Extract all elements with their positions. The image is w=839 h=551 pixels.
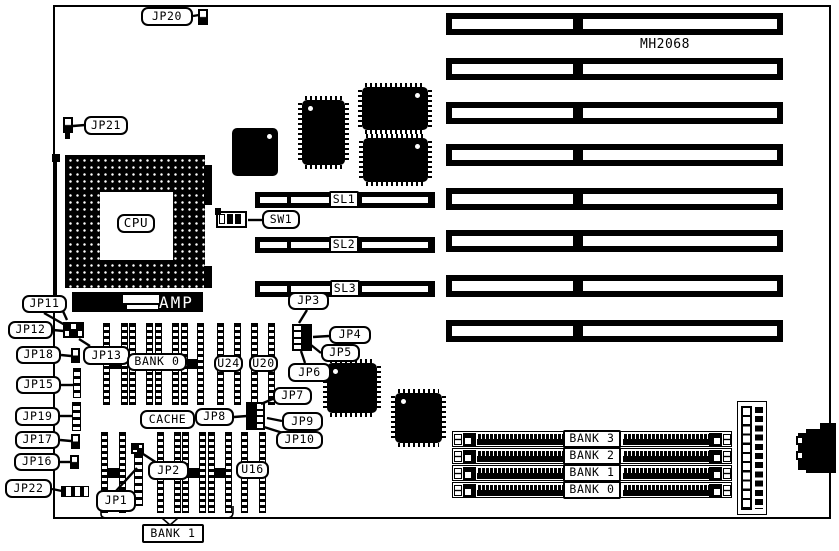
simm-endcap <box>723 434 731 445</box>
simm-bank-label: BANK 0 <box>563 481 621 499</box>
slot-opening <box>452 64 573 74</box>
chip-qfp <box>327 363 377 413</box>
amp-connector-key <box>127 305 158 309</box>
cpu-label: CPU <box>117 214 155 233</box>
isa-slot-2 <box>446 58 783 80</box>
isa-slot-4 <box>446 144 783 166</box>
simm-latch <box>463 450 476 463</box>
callout-jp7: JP7 <box>273 387 312 405</box>
slot-opening <box>260 242 287 248</box>
jumper-block-jp11-jp13 <box>63 322 84 338</box>
jumper-block-jp3-jp6 <box>292 324 312 351</box>
socket-lever <box>55 162 57 300</box>
slot-opening <box>260 286 287 292</box>
callout-jp10: JP10 <box>276 431 323 449</box>
slot-opening <box>362 242 428 248</box>
jumper-jp18 <box>71 348 80 363</box>
slot-opening <box>452 326 573 336</box>
simm-endcap <box>723 468 731 479</box>
pin1-dot <box>401 399 406 404</box>
callout-jp11: JP11 <box>22 295 67 313</box>
slot-opening <box>452 108 573 118</box>
isa-slot-8 <box>446 320 783 342</box>
jumper-strip-jp19 <box>72 402 81 431</box>
amp-connector-label: AMP <box>159 295 194 311</box>
simm-contact-strip <box>477 485 563 496</box>
simm-bank-label: BANK 3 <box>563 430 621 448</box>
simm-latch <box>709 467 722 480</box>
callout-jp5: JP5 <box>321 344 360 362</box>
keyboard-connector-pin <box>796 436 804 445</box>
slot-label-sl1: SL1 <box>329 191 359 208</box>
isa-slot-7 <box>446 275 783 297</box>
simm-socket-bank1: BANK 1 <box>452 465 732 481</box>
simm-endcap <box>454 468 462 479</box>
pin1-dot <box>415 144 420 149</box>
callout-jp15: JP15 <box>16 376 61 394</box>
callout-jp2: JP2 <box>148 461 189 480</box>
slot-opening <box>583 64 777 74</box>
callout-jp21: JP21 <box>84 116 128 135</box>
slot-opening <box>452 281 573 291</box>
callout-jp1: JP1 <box>96 490 136 512</box>
slot-opening <box>583 108 777 118</box>
callout-jp20: JP20 <box>141 7 193 26</box>
pin1-dot <box>415 93 420 98</box>
power-pin-column <box>755 407 763 509</box>
callout-jp18: JP18 <box>16 346 61 364</box>
cache-label: CACHE <box>140 410 195 429</box>
switch-cell <box>227 214 233 224</box>
simm-contact-strip <box>477 434 563 445</box>
slot-opening <box>583 236 777 246</box>
chip-qfp <box>302 100 345 165</box>
jumper-jp21-stem <box>65 133 70 139</box>
socket-tab <box>204 165 212 205</box>
keyboard-connector <box>806 429 821 473</box>
u16-label: U16 <box>236 461 269 479</box>
slot-label-sl2: SL2 <box>329 236 359 253</box>
simm-endcap <box>454 434 462 445</box>
simm-endcap <box>454 451 462 462</box>
isa-slot-5 <box>446 188 783 210</box>
dip-chip <box>208 432 232 513</box>
callout-jp9: JP9 <box>282 412 323 431</box>
socket-tab <box>204 266 212 288</box>
simm-socket-bank3: BANK 3 <box>452 431 732 447</box>
u24-label: U24 <box>214 355 243 372</box>
pin1-dot <box>333 369 338 374</box>
callout-jp8: JP8 <box>195 408 234 426</box>
isa-slot-1 <box>446 13 783 35</box>
jumper-strip-jp22 <box>61 486 89 497</box>
callout-jp22: JP22 <box>5 479 52 498</box>
chip-qfp <box>362 87 428 130</box>
slot-opening <box>291 242 330 248</box>
slot-opening <box>452 150 573 160</box>
simm-latch <box>709 484 722 497</box>
keyboard-connector-pin <box>796 451 804 460</box>
jumper-block-jp7-jp10 <box>246 402 265 430</box>
u20-label: U20 <box>249 355 278 372</box>
switch-cell <box>219 214 225 224</box>
slot-opening <box>583 281 777 291</box>
jumper-strip-jp15 <box>73 368 81 398</box>
slot-opening <box>583 194 777 204</box>
jumper-jp17 <box>71 434 80 449</box>
slot-opening <box>362 286 428 292</box>
board-id-label: MH2068 <box>640 38 690 51</box>
slot-opening <box>362 197 428 203</box>
callout-jp17: JP17 <box>15 431 60 449</box>
simm-latch <box>709 450 722 463</box>
simm-contact-strip <box>477 468 563 479</box>
callout-jp19: JP19 <box>15 407 60 426</box>
callout-jp3: JP3 <box>288 292 329 310</box>
simm-contact-strip <box>623 434 709 445</box>
bank0-label: BANK 0 <box>127 353 187 371</box>
simm-latch <box>463 433 476 446</box>
isa-slot-6 <box>446 230 783 252</box>
slot-opening <box>583 326 777 336</box>
socket-lever-foot <box>52 154 60 162</box>
simm-socket-bank0: BANK 0 <box>452 482 732 498</box>
jumper-jp21 <box>63 117 73 133</box>
slot-opening <box>583 19 777 29</box>
simm-contact-strip <box>623 485 709 496</box>
amp-connector-key <box>123 295 159 303</box>
pin1-dot <box>267 134 272 139</box>
slot-opening <box>583 150 777 160</box>
chip-square <box>232 128 278 176</box>
simm-socket-bank2: BANK 2 <box>452 448 732 464</box>
bank1-label: BANK 1 <box>142 524 204 543</box>
chip-qfp <box>395 393 442 443</box>
keyboard-connector <box>820 423 836 473</box>
simm-contact-strip <box>477 451 563 462</box>
power-connector <box>737 401 767 515</box>
callout-jp12: JP12 <box>8 321 53 339</box>
simm-contact-strip <box>623 468 709 479</box>
jumper-jp20 <box>198 9 208 25</box>
simm-endcap <box>723 451 731 462</box>
slot-opening <box>291 197 330 203</box>
callout-jp6: JP6 <box>288 363 331 382</box>
chip-qfp <box>363 138 428 182</box>
power-pin-column <box>741 406 752 510</box>
pin1-dot <box>308 106 313 111</box>
slot-opening <box>452 19 573 29</box>
simm-endcap <box>454 485 462 496</box>
motherboard-diagram: MH2068 SL1 SL2 SL3 AMP <box>0 0 839 551</box>
slot-opening <box>452 194 573 204</box>
simm-latch <box>709 433 722 446</box>
slot-opening <box>452 236 573 246</box>
callout-jp4: JP4 <box>329 326 371 344</box>
switch-cell <box>235 214 241 224</box>
callout-sw1: SW1 <box>262 210 300 229</box>
simm-bank-label: BANK 2 <box>563 447 621 465</box>
slot-opening <box>260 197 287 203</box>
isa-slot-3 <box>446 102 783 124</box>
simm-latch <box>463 467 476 480</box>
callout-jp13: JP13 <box>83 346 130 365</box>
callout-jp16: JP16 <box>14 453 60 471</box>
simm-endcap <box>723 485 731 496</box>
simm-contact-strip <box>623 451 709 462</box>
jumper-block-jp2 <box>131 443 144 454</box>
simm-bank-label: BANK 1 <box>563 464 621 482</box>
slot-label-sl3: SL3 <box>330 280 360 297</box>
simm-latch <box>463 484 476 497</box>
jumper-jp16 <box>70 455 79 469</box>
